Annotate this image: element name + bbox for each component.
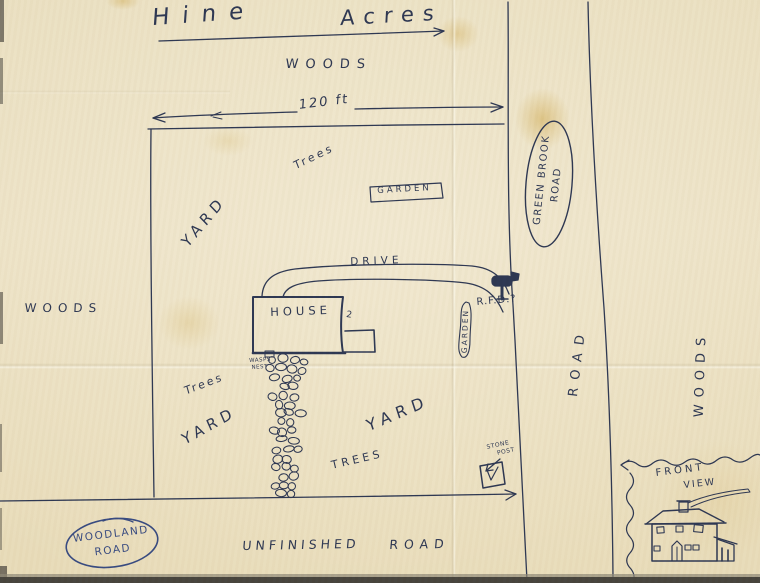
- stone-pebble: [278, 354, 288, 363]
- wasps-nest-line2: NEST: [251, 364, 271, 372]
- stone-pebble: [278, 390, 288, 400]
- stone-post-box: [480, 459, 505, 488]
- stone-pebble: [294, 445, 303, 453]
- stone-pebble: [293, 375, 301, 382]
- chimney-smoke: [688, 489, 750, 507]
- stone-pebble: [290, 356, 301, 365]
- stone-pebble: [288, 482, 297, 490]
- stone-pebble: [279, 482, 288, 489]
- stone-pebble: [290, 465, 298, 472]
- woods-top-label: WOODS: [285, 57, 373, 73]
- stone-pebble: [267, 392, 277, 401]
- unfinished-road-word1: UNFINISHED: [242, 536, 361, 553]
- stone-pebble: [288, 471, 300, 482]
- woods-right-label: WOODS: [692, 330, 711, 417]
- title-underline-arrow: [159, 28, 444, 41]
- green-brook-road-lines: [508, 2, 613, 581]
- stone-pebble: [271, 463, 281, 472]
- stone-pebble: [275, 489, 287, 497]
- stone-pebble: [269, 373, 280, 381]
- house-label: HOUSE: [270, 304, 331, 320]
- stone-pebble: [287, 490, 295, 497]
- stone-pebble: [286, 364, 297, 374]
- stone-pebble: [276, 435, 288, 442]
- stone-pebble: [300, 358, 309, 365]
- stone-pebble: [289, 393, 299, 401]
- stone-pebble: [286, 418, 295, 427]
- stone-pebble: [277, 417, 285, 425]
- stone-pebble: [278, 473, 288, 481]
- stone-pebble: [271, 482, 281, 490]
- map-ink-drawing: [0, 0, 760, 583]
- stone-pebble: [295, 410, 306, 417]
- wasps-nest-label: WASPS NEST: [249, 357, 271, 372]
- stone-pebble: [271, 446, 281, 454]
- front-view-house: [645, 489, 750, 561]
- unfinished-road-word2: ROAD: [389, 536, 451, 552]
- stone-pebble: [269, 426, 280, 435]
- stone-pebble: [276, 363, 287, 370]
- stone-walk: [265, 354, 308, 498]
- drive-label: DRIVE: [350, 254, 403, 268]
- stone-pebble: [288, 437, 300, 445]
- woods-left-label: WOODS: [24, 301, 102, 315]
- stone-pebble: [283, 445, 294, 453]
- stone-pebble: [287, 427, 296, 434]
- garden-strip-label: GARDEN: [460, 309, 471, 354]
- scanned-map-page: Hine Acres WOODS 120 ft Trees GARDEN YAR…: [0, 0, 760, 583]
- stone-pebble: [297, 366, 307, 375]
